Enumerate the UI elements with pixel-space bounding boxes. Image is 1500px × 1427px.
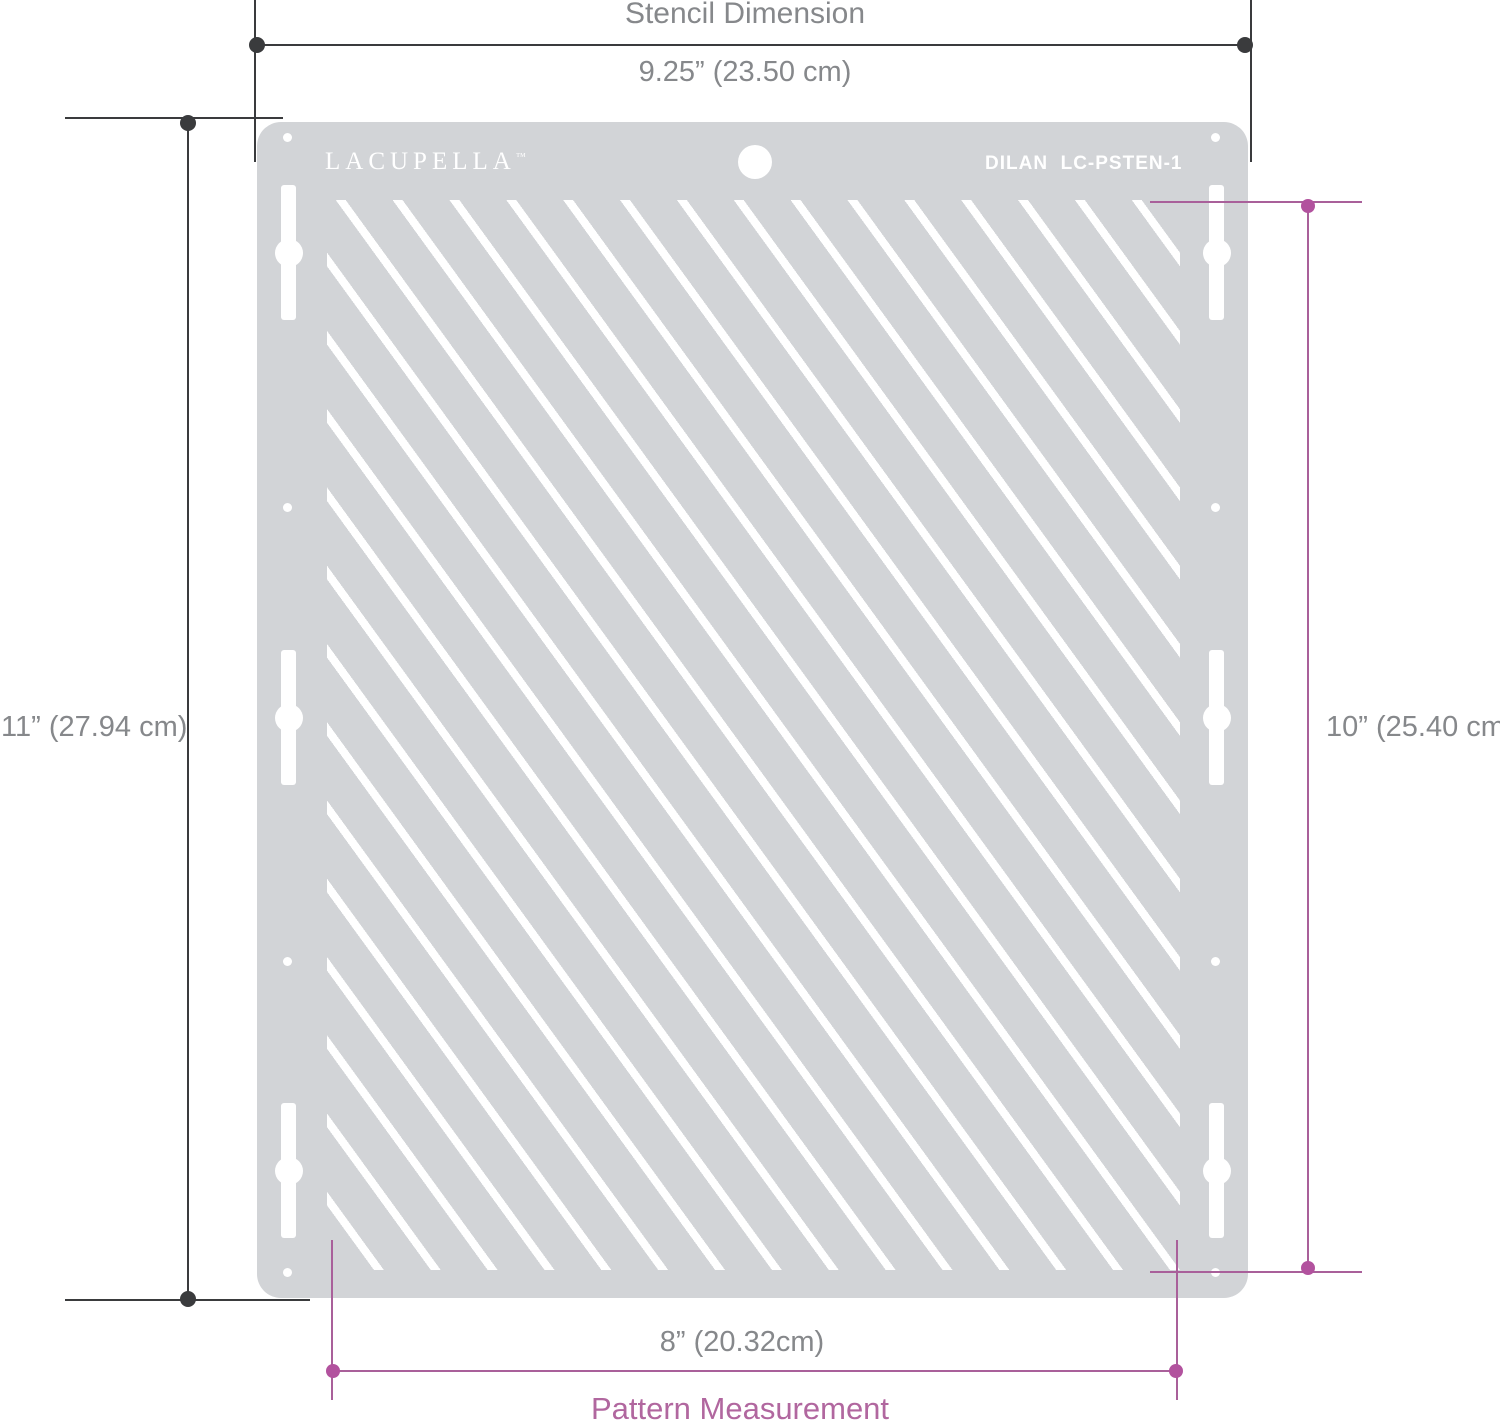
pattern-endpoint-dot — [1301, 1261, 1315, 1275]
pattern-extension-line — [1150, 201, 1362, 203]
part-number: DILAN LC-PSTEN-1 — [985, 153, 1175, 175]
mounting-slot-left-middle — [281, 650, 296, 785]
registration-hole-icon — [283, 503, 292, 512]
registration-hole-icon — [1211, 957, 1220, 966]
stencil-plate: LACUPELLA™ DILAN LC-PSTEN-1 — [257, 122, 1248, 1298]
mounting-slot-right-bottom — [1209, 1103, 1224, 1238]
registration-hole-icon — [1211, 503, 1220, 512]
brand-logo-text: LACUPELLA — [325, 148, 516, 175]
pattern-height-dimension-line — [1307, 205, 1309, 1269]
mounting-slot-left-top — [281, 185, 296, 320]
dimension-endpoint-dot — [249, 37, 265, 53]
mounting-slot-right-top — [1209, 185, 1224, 320]
registration-hole-icon — [1211, 133, 1220, 142]
dimension-endpoint-dot — [1237, 37, 1253, 53]
pattern-measurement-caption: Pattern Measurement — [440, 1391, 1040, 1427]
hanging-hole-icon — [738, 145, 772, 179]
extension-line — [65, 117, 283, 119]
width-dimension-line — [256, 44, 1246, 46]
stencil-dimension-diagram: { "title": "Stencil Dimension", "stencil… — [0, 0, 1500, 1426]
registration-hole-icon — [283, 1268, 292, 1277]
stencil-height-label: 11” (27.94 cm) — [1, 711, 187, 744]
pattern-endpoint-dot — [1169, 1364, 1183, 1378]
stencil-width-label: 9.25” (23.50 cm) — [545, 56, 945, 89]
extension-line — [254, 0, 256, 162]
trademark-symbol: ™ — [516, 152, 526, 163]
registration-hole-icon — [283, 957, 292, 966]
pattern-width-label: 8” (20.32cm) — [542, 1326, 942, 1359]
extension-line — [1250, 0, 1252, 162]
pattern-endpoint-dot — [1301, 199, 1315, 213]
dimension-endpoint-dot — [180, 115, 196, 131]
pattern-extension-line — [1150, 1271, 1362, 1273]
dimension-endpoint-dot — [180, 1291, 196, 1307]
brand-logo: LACUPELLA™ — [325, 148, 526, 176]
diagram-title: Stencil Dimension — [495, 0, 995, 31]
registration-hole-icon — [283, 133, 292, 142]
pattern-height-label: 10” (25.40 cm) — [1326, 711, 1500, 744]
diagonal-stripe-pattern — [327, 200, 1180, 1270]
pattern-endpoint-dot — [326, 1364, 340, 1378]
mounting-slot-left-bottom — [281, 1103, 296, 1238]
mounting-slot-right-middle — [1209, 650, 1224, 785]
pattern-width-dimension-line — [333, 1370, 1177, 1372]
